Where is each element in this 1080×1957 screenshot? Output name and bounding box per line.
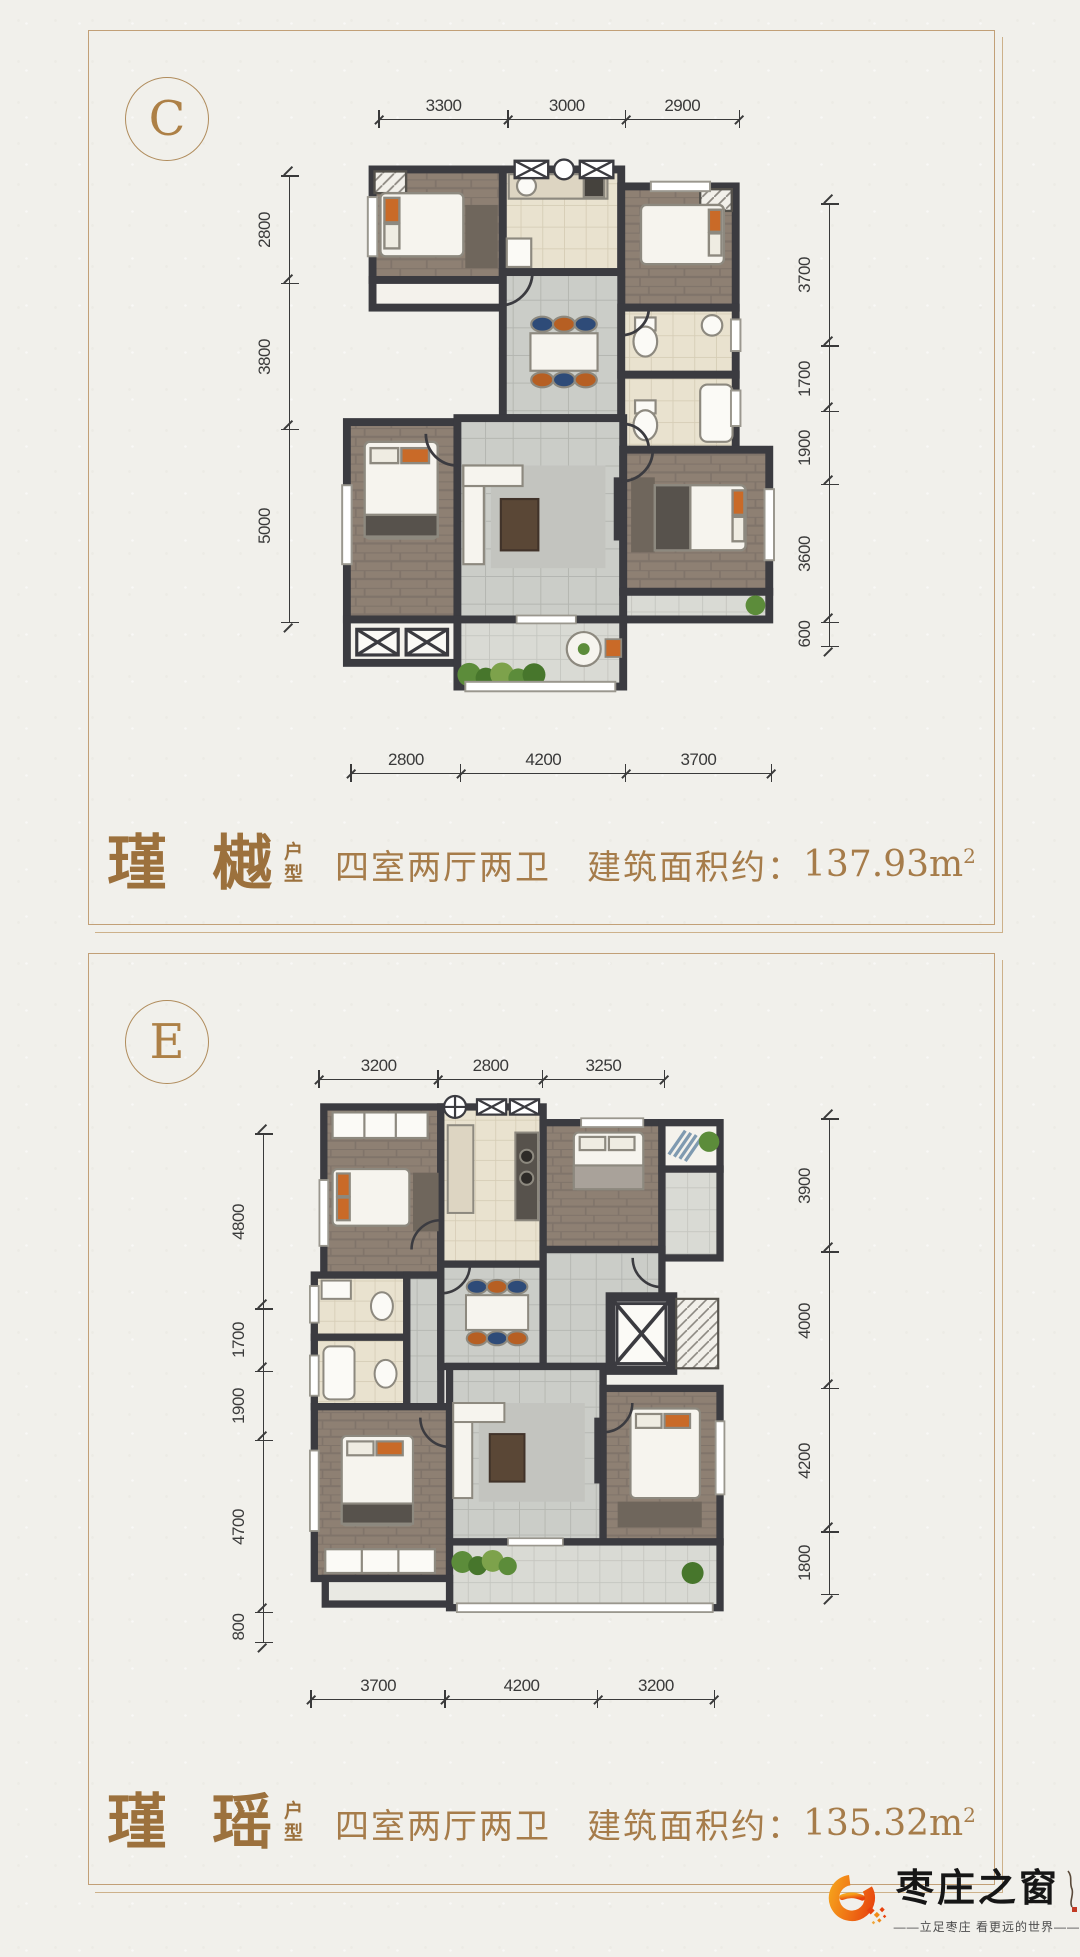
logo-brand: 枣庄之窗 <box>896 1867 1060 1909</box>
ruler-top-c: 3300 3000 2900 <box>379 89 739 119</box>
plan-name: 瑾 樾 <box>107 834 284 894</box>
dim-segment: 1900 <box>223 1372 264 1441</box>
logo-dots <box>867 1907 887 1925</box>
ac-unit <box>375 171 407 193</box>
plan-area: 137.93m2 <box>803 844 976 885</box>
bay-planter <box>373 280 503 308</box>
ruler-left-c: 2800 3800 5000 <box>249 176 289 622</box>
plan-letter: C <box>149 91 186 147</box>
plan-description: 四室两厅两卫 建筑面积约： <box>335 840 803 889</box>
tv <box>594 1418 600 1484</box>
balcony-slider <box>508 1538 563 1545</box>
dim-segment: 2800 <box>351 743 461 774</box>
rug <box>618 1502 702 1528</box>
balcony-slider <box>517 616 576 624</box>
floorplan-panel-c: C 3300 3000 2900 2800 3800 5000 3700 170… <box>88 30 995 925</box>
dining-set <box>466 1280 528 1345</box>
dim-segment: 3700 <box>789 204 830 346</box>
plan-badge-c: C <box>125 77 209 161</box>
step-strip <box>325 1578 449 1604</box>
bed-se <box>655 485 746 550</box>
bed-nw <box>380 193 463 256</box>
floor-plan-e <box>307 1092 731 1619</box>
rug <box>631 477 655 552</box>
rug <box>413 1173 439 1231</box>
floorplan-panel-e: E 3200 2800 3250 4800 1700 1900 4700 800… <box>88 953 995 1885</box>
coffee-table <box>501 499 539 550</box>
plan-description: 四室两厅两卫 建筑面积约： <box>335 1799 803 1848</box>
dim-segment: 3200 <box>319 1049 438 1080</box>
casement-window <box>515 160 614 180</box>
dim-segment: 3800 <box>249 284 290 430</box>
rug <box>465 205 497 268</box>
dining-set <box>530 317 597 388</box>
logo-e-icon <box>826 1854 888 1948</box>
dim-segment: 2800 <box>249 176 290 284</box>
dim-segment: 3700 <box>311 1669 445 1700</box>
plan-type-label: 户 型 <box>284 842 303 886</box>
ruler-left-e: 4800 1700 1900 4700 800 <box>223 1134 263 1642</box>
dim-segment: 3250 <box>543 1049 664 1080</box>
plan-type-label: 户 型 <box>284 1801 303 1845</box>
dim-segment: 800 <box>223 1613 264 1642</box>
dim-segment: 4700 <box>223 1441 264 1613</box>
floor-plan-c <box>339 153 789 703</box>
dim-segment: 2900 <box>626 89 739 120</box>
dim-segment: 1700 <box>789 346 830 411</box>
dim-segment: 4000 <box>789 1252 830 1389</box>
ruler-top-e: 3200 2800 3250 <box>319 1049 664 1079</box>
bed-sw <box>365 442 438 539</box>
bed-se <box>630 1409 699 1499</box>
coffee-table <box>490 1434 525 1482</box>
dim-segment: 600 <box>789 623 830 646</box>
ruler-bottom-e: 3700 4200 3200 <box>311 1669 714 1699</box>
dim-segment: 5000 <box>249 430 290 622</box>
dim-segment: 3000 <box>508 89 625 120</box>
entry-east <box>662 1169 720 1258</box>
dim-segment: 3200 <box>598 1669 714 1700</box>
dim-segment: 3900 <box>789 1119 830 1252</box>
plan-caption-c: 瑾 樾 户 型 四室两厅两卫 建筑面积约： 137.93m2 <box>119 821 964 907</box>
plan-area: 135.32m2 <box>803 1803 976 1844</box>
dim-segment: 4200 <box>461 743 626 774</box>
bed-nw <box>333 1169 410 1226</box>
corridor <box>407 1275 441 1407</box>
logo-text-block: 枣庄之窗 ——立足枣庄 看更远的世界—— <box>894 1867 1080 1935</box>
site-logo: 枣庄之窗 ——立足枣庄 看更远的世界—— <box>826 1850 1080 1952</box>
dim-segment: 1900 <box>789 412 830 485</box>
dim-segment: 4200 <box>789 1389 830 1533</box>
dim-segment: 3600 <box>789 485 830 623</box>
plan-badge-e: E <box>125 1000 209 1084</box>
plan-letter: E <box>149 1014 184 1070</box>
dim-segment: 3300 <box>379 89 508 120</box>
elevator-shaft <box>610 1297 672 1370</box>
logo-tagline: ——立足枣庄 看更远的世界—— <box>894 1918 1080 1935</box>
casement-window <box>444 1096 539 1118</box>
dim-segment: 1800 <box>789 1532 830 1594</box>
plan-name: 瑾 瑶 <box>107 1793 284 1853</box>
bed-ne <box>574 1133 643 1190</box>
stairs <box>676 1299 718 1368</box>
ruler-right-c: 3700 1700 1900 3600 600 <box>789 204 829 646</box>
tv <box>614 477 621 540</box>
dim-segment: 4200 <box>445 1669 597 1700</box>
dim-segment: 1700 <box>223 1309 264 1371</box>
logo-signature-icon <box>1064 1867 1078 1913</box>
ruler-right-e: 3900 4000 4200 1800 <box>789 1119 829 1594</box>
bed-sw <box>342 1436 413 1526</box>
dim-segment: 3700 <box>626 743 771 774</box>
bed-ne <box>641 205 724 264</box>
dim-segment: 2800 <box>438 1049 542 1080</box>
dim-segment: 4800 <box>223 1134 264 1309</box>
ruler-bottom-c: 2800 4200 3700 <box>351 743 771 773</box>
